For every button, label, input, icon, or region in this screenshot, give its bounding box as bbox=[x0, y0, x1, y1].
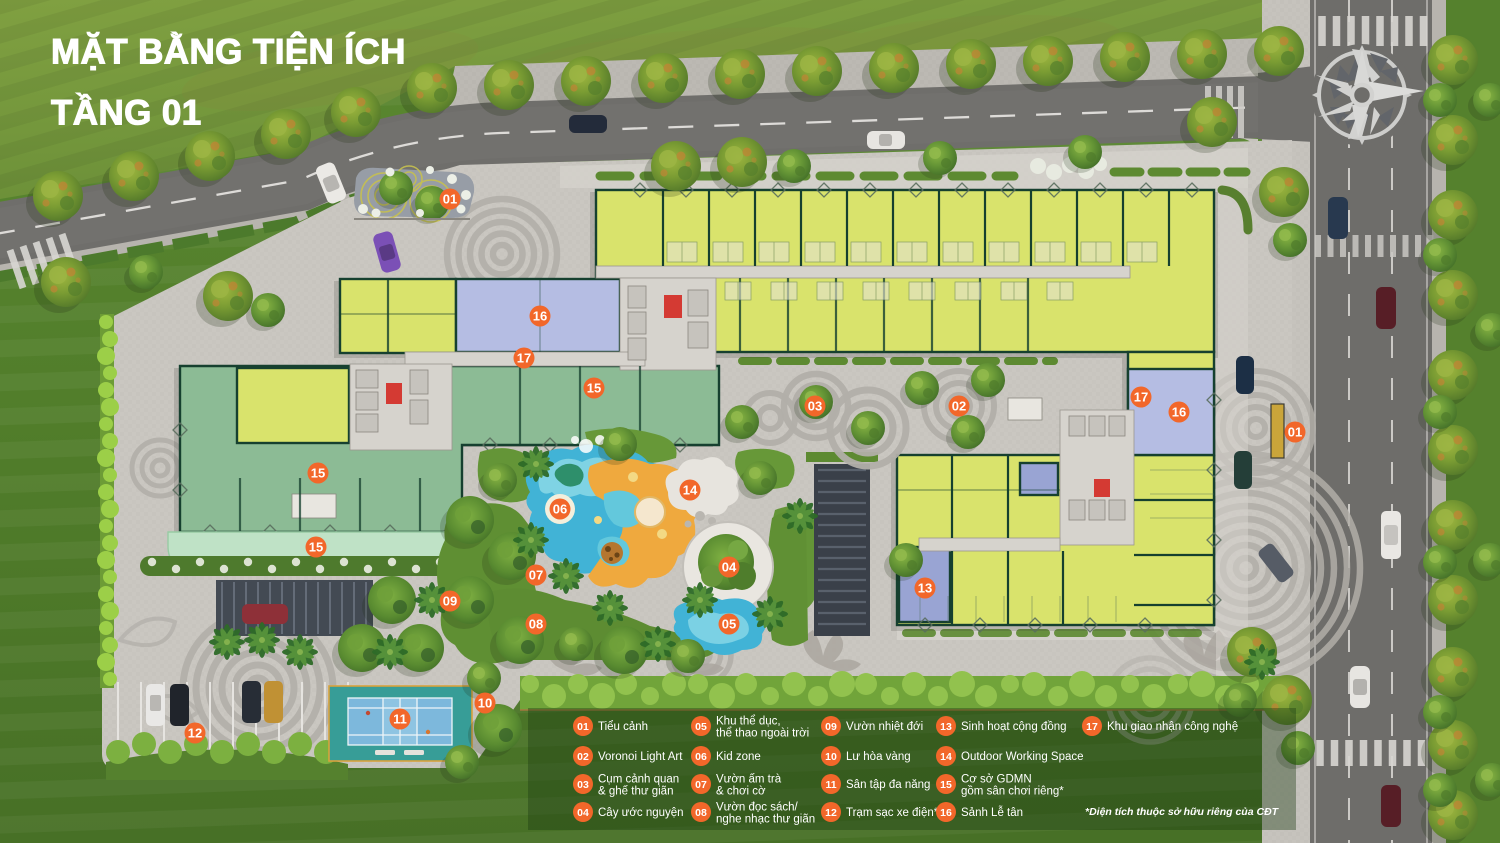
svg-text:Voronoi Light Art: Voronoi Light Art bbox=[598, 751, 683, 763]
svg-text:Vườn đọc sách/: Vườn đọc sách/ bbox=[716, 802, 799, 814]
svg-text:TẦNG 01: TẦNG 01 bbox=[51, 93, 202, 133]
svg-text:gồm sân chơi riêng*: gồm sân chơi riêng* bbox=[961, 786, 1064, 798]
svg-text:15: 15 bbox=[940, 779, 952, 791]
svg-text:Cây ước nguyện: Cây ước nguyện bbox=[598, 807, 684, 819]
svg-text:02: 02 bbox=[577, 751, 589, 763]
svg-text:04: 04 bbox=[722, 560, 737, 575]
svg-text:07: 07 bbox=[529, 568, 543, 583]
svg-text:Outdoor Working Space: Outdoor Working Space bbox=[961, 751, 1084, 763]
svg-text:& ghế thư giãn: & ghế thư giãn bbox=[598, 786, 673, 798]
svg-text:12: 12 bbox=[825, 807, 837, 819]
svg-text:Vườn nhiệt đới: Vườn nhiệt đới bbox=[846, 721, 923, 733]
svg-text:13: 13 bbox=[940, 721, 952, 733]
svg-text:Cụm cảnh quan: Cụm cảnh quan bbox=[598, 774, 679, 786]
svg-text:17: 17 bbox=[1134, 390, 1148, 405]
svg-text:& chơi cờ: & chơi cờ bbox=[716, 786, 766, 798]
svg-text:Sảnh Lễ tân: Sảnh Lễ tân bbox=[961, 806, 1023, 819]
svg-text:17: 17 bbox=[517, 351, 531, 366]
svg-text:09: 09 bbox=[443, 594, 457, 609]
svg-text:05: 05 bbox=[695, 721, 707, 733]
svg-text:16: 16 bbox=[940, 807, 952, 819]
svg-text:08: 08 bbox=[695, 807, 707, 819]
svg-text:16: 16 bbox=[533, 309, 547, 324]
svg-text:09: 09 bbox=[825, 721, 837, 733]
svg-text:13: 13 bbox=[918, 581, 932, 596]
svg-text:16: 16 bbox=[1172, 405, 1186, 420]
svg-text:14: 14 bbox=[940, 751, 952, 763]
svg-text:14: 14 bbox=[683, 483, 698, 498]
svg-text:Kid zone: Kid zone bbox=[716, 751, 761, 763]
svg-text:17: 17 bbox=[1086, 721, 1098, 733]
svg-text:03: 03 bbox=[808, 399, 822, 414]
svg-text:Khu thể dục,: Khu thể dục, bbox=[716, 716, 781, 728]
svg-text:10: 10 bbox=[478, 696, 492, 711]
svg-text:04: 04 bbox=[577, 807, 589, 819]
svg-text:06: 06 bbox=[695, 751, 707, 763]
svg-text:Sân tập đa năng: Sân tập đa năng bbox=[846, 779, 930, 791]
svg-text:Lư hòa vàng: Lư hòa vàng bbox=[846, 751, 911, 763]
svg-text:15: 15 bbox=[311, 466, 325, 481]
svg-text:06: 06 bbox=[553, 502, 567, 517]
svg-text:03: 03 bbox=[577, 779, 589, 791]
svg-text:15: 15 bbox=[309, 540, 323, 555]
svg-text:11: 11 bbox=[393, 712, 407, 727]
svg-text:15: 15 bbox=[587, 381, 601, 396]
svg-text:Tiểu cảnh: Tiểu cảnh bbox=[598, 721, 648, 733]
svg-text:Cơ sở GDMN: Cơ sở GDMN bbox=[961, 774, 1032, 786]
svg-text:10: 10 bbox=[825, 751, 837, 763]
svg-text:12: 12 bbox=[188, 726, 202, 741]
svg-text:Vườn ấm trà: Vườn ấm trà bbox=[716, 774, 782, 786]
svg-text:Trạm sạc xe điện*: Trạm sạc xe điện* bbox=[846, 807, 939, 819]
svg-text:Sinh hoạt cộng đồng: Sinh hoạt cộng đồng bbox=[961, 721, 1067, 733]
svg-text:07: 07 bbox=[695, 779, 707, 791]
svg-text:Khu giao nhận công nghệ: Khu giao nhận công nghệ bbox=[1107, 721, 1238, 733]
svg-text:08: 08 bbox=[529, 617, 543, 632]
svg-text:01: 01 bbox=[1288, 425, 1302, 440]
svg-text:01: 01 bbox=[443, 192, 457, 207]
svg-text:11: 11 bbox=[825, 779, 836, 791]
svg-text:MẶT BẰNG TIỆN ÍCH: MẶT BẰNG TIỆN ÍCH bbox=[51, 32, 406, 72]
svg-text:thể thao ngoài trời: thể thao ngoài trời bbox=[716, 728, 809, 740]
svg-text:05: 05 bbox=[722, 617, 736, 632]
svg-text:02: 02 bbox=[952, 399, 966, 414]
svg-text:*Diện tích thuộc sở hữu riêng: *Diện tích thuộc sở hữu riêng của CĐT bbox=[1085, 806, 1280, 818]
svg-text:01: 01 bbox=[577, 721, 589, 733]
svg-text:nghe nhạc thư giãn: nghe nhạc thư giãn bbox=[716, 814, 815, 826]
